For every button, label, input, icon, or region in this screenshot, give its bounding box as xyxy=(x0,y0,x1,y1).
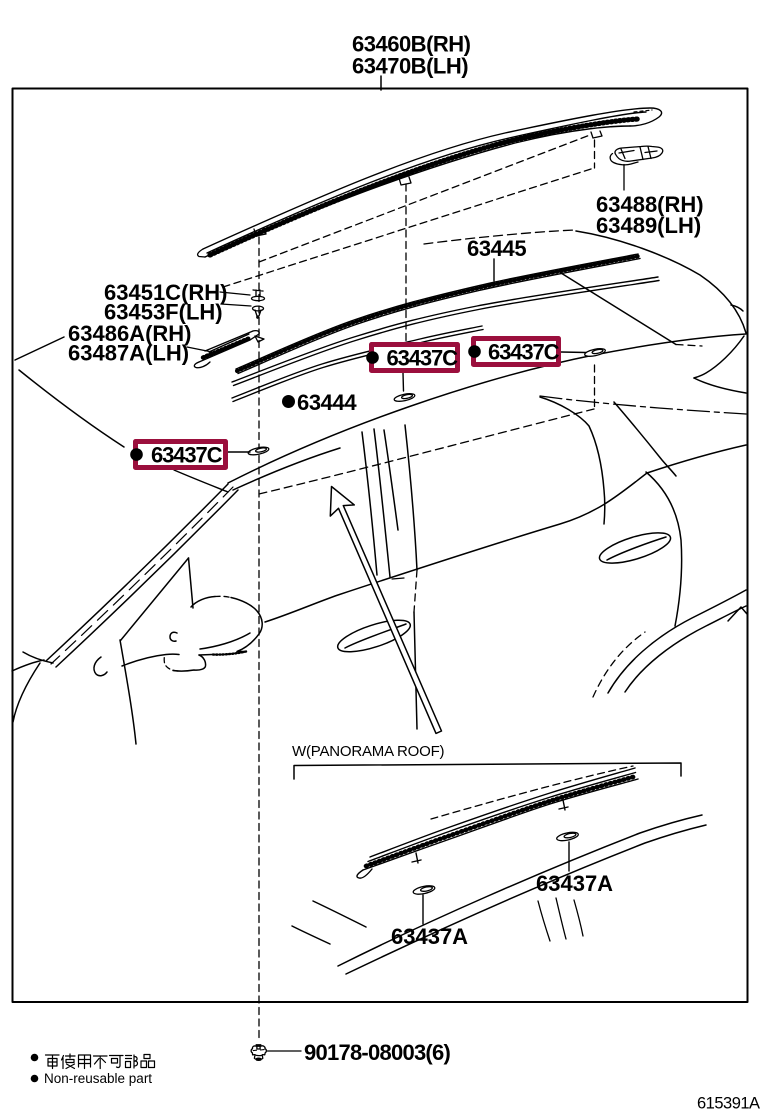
svg-text:63437C: 63437C xyxy=(488,340,560,365)
svg-text:63489(LH): 63489(LH) xyxy=(596,213,701,238)
svg-text:615391A: 615391A xyxy=(697,1095,760,1112)
svg-text:63437C: 63437C xyxy=(151,443,223,468)
svg-text:63437C: 63437C xyxy=(387,346,459,371)
svg-text:63437A: 63437A xyxy=(536,871,613,896)
svg-text:63437A: 63437A xyxy=(391,924,468,949)
svg-text:63445: 63445 xyxy=(467,236,526,261)
svg-text:90178-08003(6): 90178-08003(6) xyxy=(304,1040,450,1065)
svg-text:63487A(LH): 63487A(LH) xyxy=(68,341,189,366)
svg-text:W(PANORAMA ROOF): W(PANORAMA ROOF) xyxy=(292,743,445,760)
svg-text:Non-reusable part: Non-reusable part xyxy=(44,1071,152,1086)
svg-text:63444: 63444 xyxy=(297,390,357,415)
svg-text:63470B(LH): 63470B(LH) xyxy=(352,54,468,79)
